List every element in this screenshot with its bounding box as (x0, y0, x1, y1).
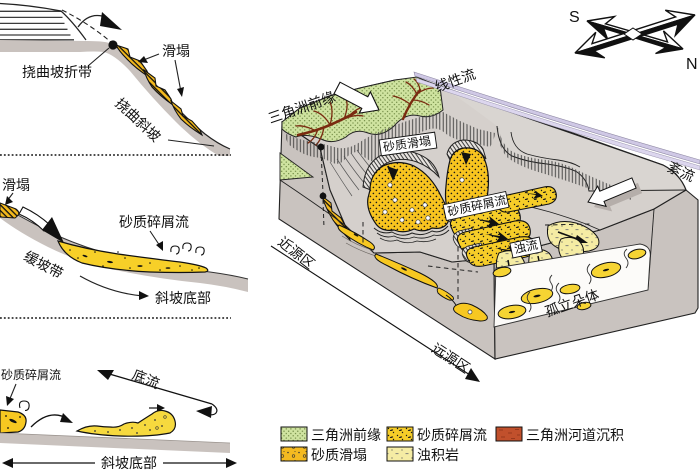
svg-text:砂质碎屑流: 砂质碎屑流 (1, 367, 61, 382)
svg-text:滑塌: 滑塌 (2, 177, 30, 193)
svg-text:砂质滑塌: 砂质滑塌 (311, 447, 367, 463)
svg-text:滑塌: 滑塌 (162, 43, 190, 59)
svg-text:S: S (569, 9, 580, 26)
svg-text:浊积岩: 浊积岩 (417, 447, 459, 463)
svg-text:三角洲河道沉积: 三角洲河道沉积 (526, 427, 624, 443)
svg-text:挠曲坡折带: 挠曲坡折带 (22, 64, 92, 80)
svg-text:N: N (686, 56, 698, 73)
svg-text:砂质碎屑流: 砂质碎屑流 (417, 427, 487, 443)
svg-text:斜坡底部: 斜坡底部 (101, 455, 157, 470)
svg-text:斜坡底部: 斜坡底部 (155, 290, 211, 306)
svg-text:三角洲前缘: 三角洲前缘 (311, 427, 381, 443)
svg-text:砂质碎屑流: 砂质碎屑流 (119, 214, 189, 230)
